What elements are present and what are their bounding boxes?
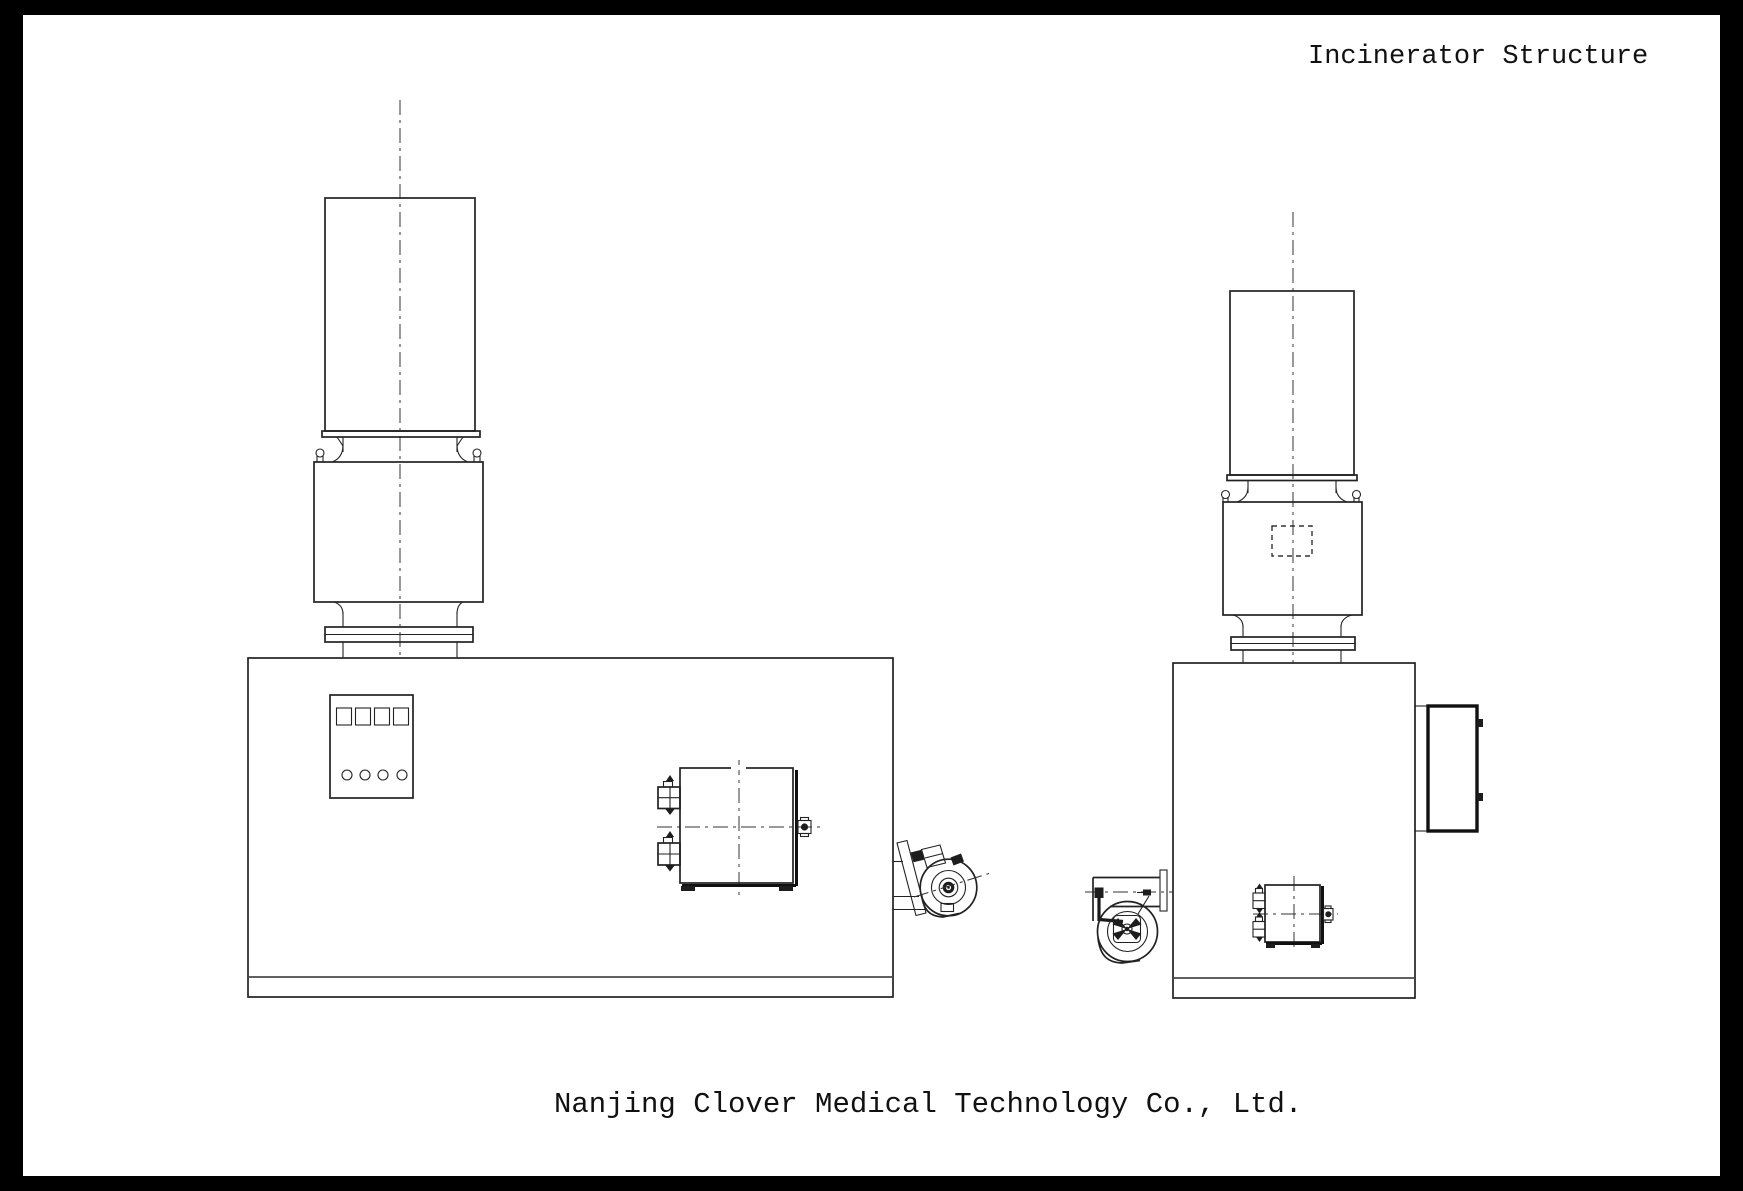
drawing-title: Incinerator Structure: [1308, 44, 1648, 71]
paper-canvas: [23, 15, 1720, 1176]
company-name: Nanjing Clover Medical Technology Co., L…: [554, 1090, 1302, 1119]
incinerator-structure-drawing: [0, 0, 1743, 1191]
blueprint-page: Incinerator Structure Nanjing Clover Med…: [0, 0, 1743, 1191]
